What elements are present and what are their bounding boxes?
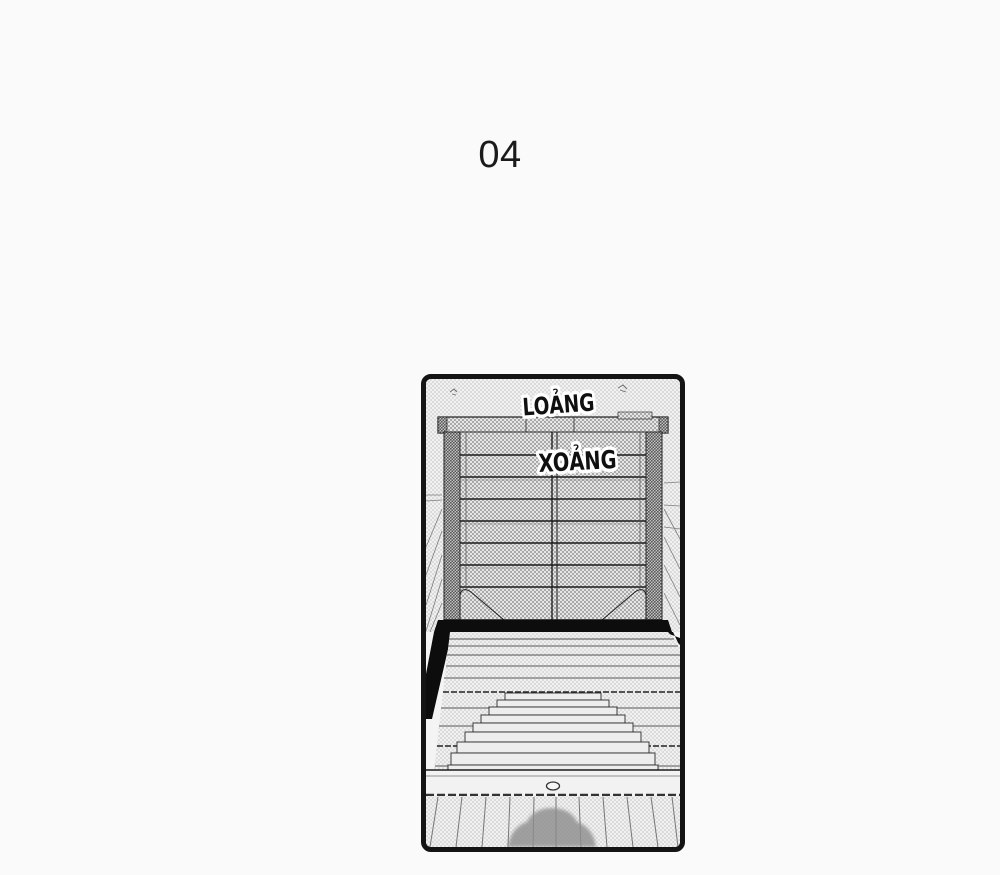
gate-art: [438, 412, 668, 620]
comic-panel: LOẢNG XOẢNG: [421, 374, 685, 852]
reader-page: 04: [0, 0, 1000, 875]
knob-hole: [547, 782, 560, 790]
page-number: 04: [0, 136, 1000, 174]
panel-artwork: LOẢNG XOẢNG: [426, 379, 680, 847]
